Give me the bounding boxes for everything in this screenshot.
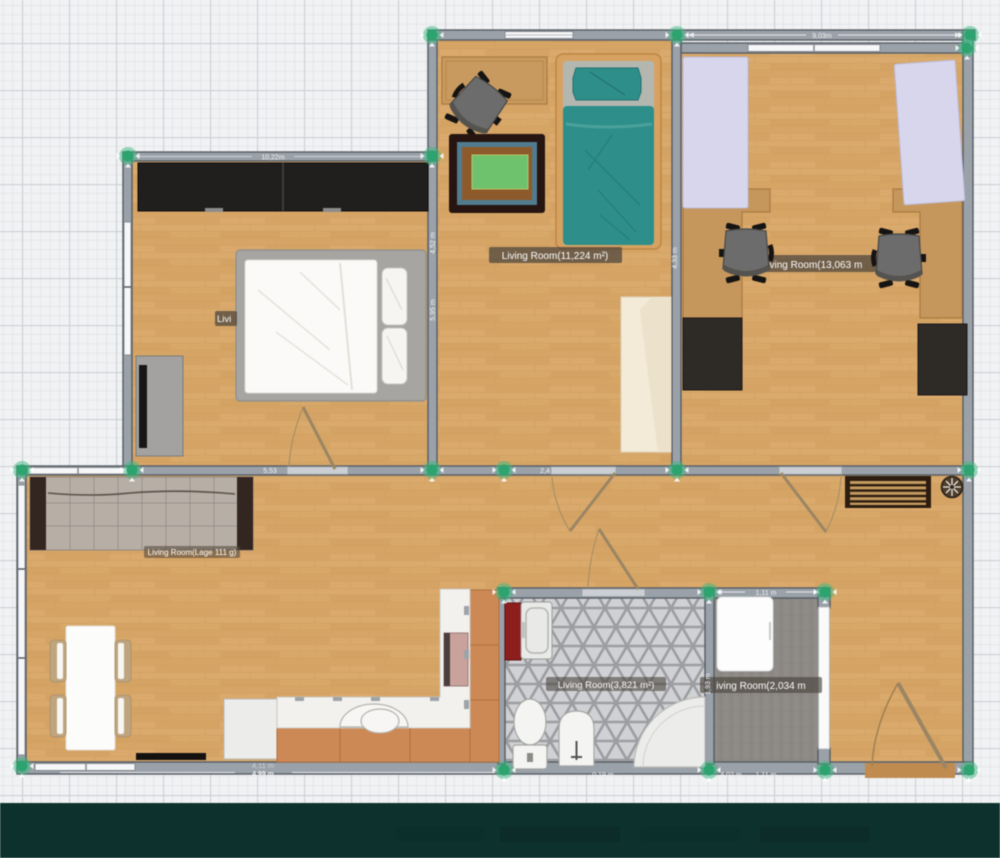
svg-text:Living Room(3,821 m²): Living Room(3,821 m²) xyxy=(558,680,655,691)
svg-text:1,11 m: 1,11 m xyxy=(756,772,777,779)
svg-text:10,22m: 10,22m xyxy=(261,155,285,162)
svg-text:1,93 m: 1,93 m xyxy=(705,673,712,695)
svg-text:Living Room(11,224 m²): Living Room(11,224 m²) xyxy=(502,251,609,262)
svg-text:4,33 m: 4,33 m xyxy=(672,247,679,269)
svg-text:Living Room(13,063 m: Living Room(13,063 m xyxy=(762,260,863,271)
svg-text:iving Room(2,034 m: iving Room(2,034 m xyxy=(716,681,805,692)
svg-text:4,52 m: 4,52 m xyxy=(430,232,437,254)
svg-text:4,02 m: 4,02 m xyxy=(720,772,742,779)
svg-text:4,11 m: 4,11 m xyxy=(252,761,274,770)
svg-text:4,99 m: 4,99 m xyxy=(252,771,274,778)
svg-text:0,19 m: 0,19 m xyxy=(592,772,614,779)
svg-text:1,11 m: 1,11 m xyxy=(756,590,777,597)
svg-text:Livi: Livi xyxy=(217,314,231,325)
svg-text:9,03m: 9,03m xyxy=(812,33,832,40)
svg-text:2,4: 2,4 xyxy=(540,468,550,475)
svg-text:5,53: 5,53 xyxy=(263,468,277,475)
svg-text:Living Room(Lage 111 g): Living Room(Lage 111 g) xyxy=(148,548,237,557)
svg-text:5,95 m: 5,95 m xyxy=(430,299,437,321)
